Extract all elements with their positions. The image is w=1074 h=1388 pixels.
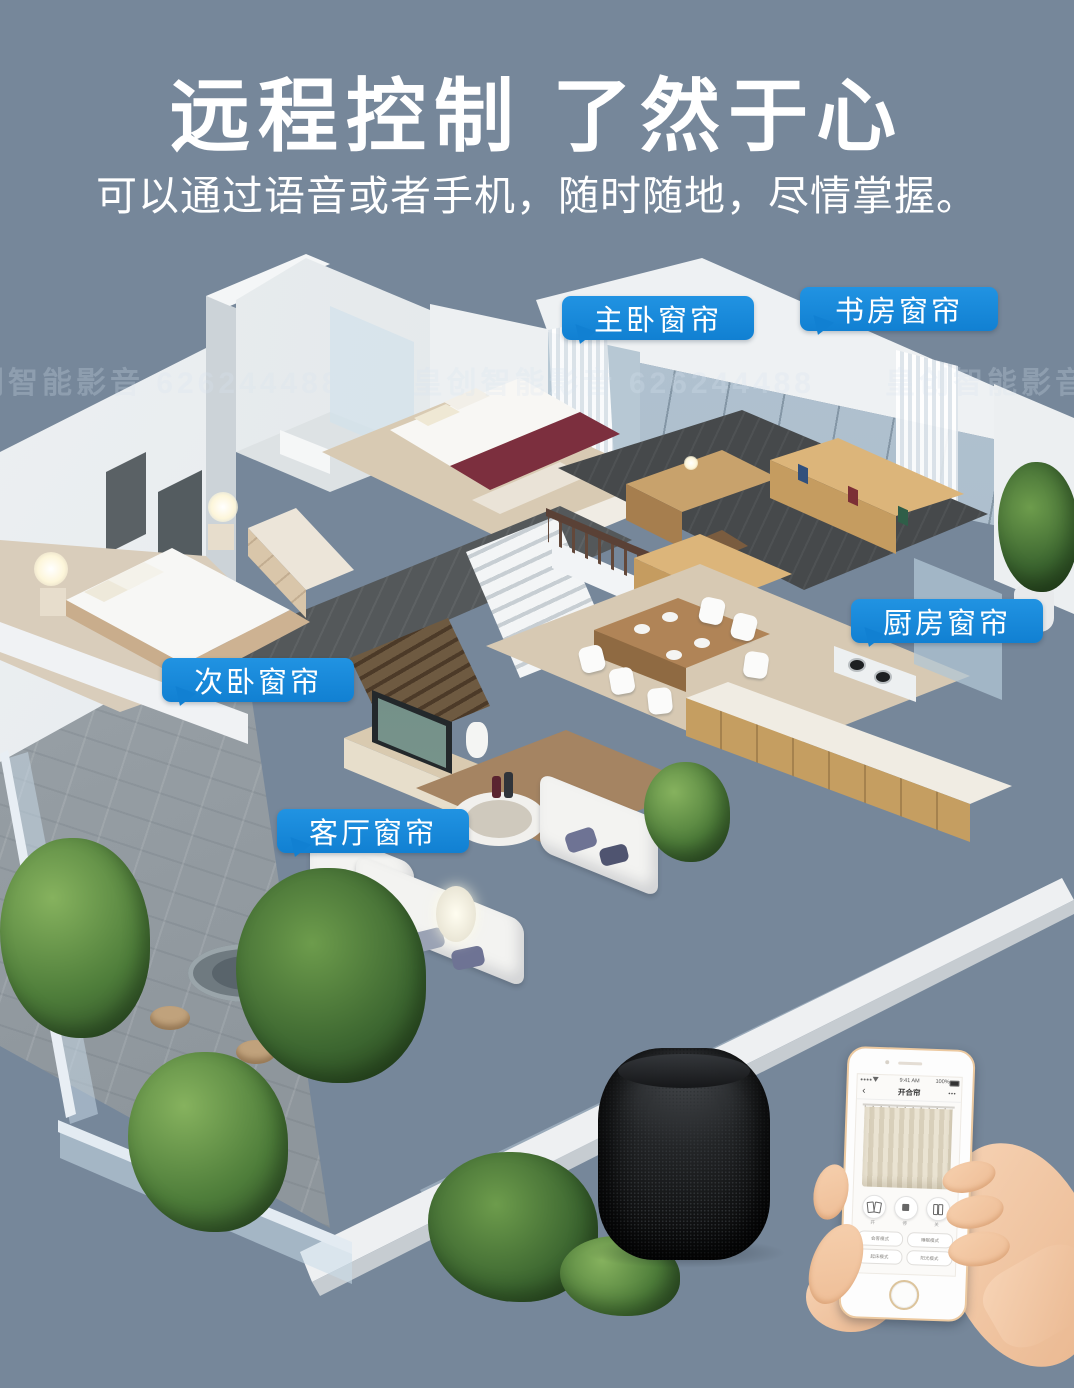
more-menu-button[interactable]: ••• — [948, 1087, 956, 1101]
stove-burner — [850, 660, 864, 670]
app-title: 开合帘 — [857, 1084, 961, 1102]
stop-curtain-button[interactable] — [894, 1196, 919, 1221]
plate — [666, 650, 682, 660]
nav-bar: ‹ 开合帘 ••• — [857, 1084, 961, 1103]
vase — [466, 722, 488, 758]
callout-second-bedroom-curtain: 次卧窗帘 — [162, 658, 354, 702]
dining-chair — [742, 650, 769, 679]
callout-study-curtain: 书房窗帘 — [800, 287, 998, 331]
callout-kitchen-curtain: 厨房窗帘 — [851, 599, 1043, 643]
callout-label: 主卧窗帘 — [594, 297, 722, 339]
smart-speaker-top — [618, 1054, 750, 1088]
dining-chair — [608, 666, 636, 696]
floor-lamp — [436, 886, 476, 942]
callout-master-bedroom-curtain: 主卧窗帘 — [562, 296, 754, 340]
front-camera — [885, 1060, 889, 1064]
mode-button[interactable]: 阳光模式 — [906, 1250, 952, 1267]
stop-label: 停 — [894, 1221, 916, 1228]
close-label: 关 — [925, 1222, 947, 1229]
hand-holding-phone: 9:41 AM 100% ‹ 开合帘 ••• 开 — [796, 1030, 1074, 1310]
table-lamp — [34, 552, 68, 586]
open-curtain-icon — [873, 1201, 882, 1213]
battery-percent: 100% — [935, 1079, 949, 1085]
close-curtain-icon — [938, 1204, 943, 1215]
watermark-text: 皇创智能影音 626244488 — [413, 367, 816, 400]
poster: { "colors": { "background": "#76879A", "… — [0, 0, 1074, 1310]
open-curtain-button[interactable] — [862, 1194, 887, 1219]
battery-icon — [949, 1080, 959, 1086]
coffee-table-top — [466, 800, 532, 838]
curtain-preview — [862, 1106, 953, 1189]
plate — [694, 638, 710, 648]
nightstand — [40, 588, 66, 616]
open-label: 开 — [862, 1219, 884, 1226]
watermark-text: 皇创智能影音 626244488 — [0, 367, 343, 400]
stove-burner — [876, 672, 890, 682]
stop-icon — [902, 1204, 909, 1211]
mode-button[interactable]: 睡眠模式 — [907, 1232, 953, 1249]
bottle — [492, 776, 501, 798]
home-button[interactable] — [889, 1279, 920, 1310]
table-lamp — [208, 492, 238, 522]
callout-living-room-curtain: 客厅窗帘 — [277, 809, 469, 853]
plate — [634, 624, 650, 634]
potted-plant — [644, 762, 730, 862]
stool — [150, 1006, 190, 1030]
earpiece — [898, 1062, 922, 1066]
callout-label: 厨房窗帘 — [883, 600, 1011, 642]
desk-lamp — [684, 456, 698, 470]
dining-chair — [647, 687, 674, 715]
watermark: 皇创智能影音 626244488皇创智能影音 626244488皇创智能影音 6… — [0, 358, 1074, 402]
plate — [662, 612, 678, 622]
callout-label: 客厅窗帘 — [309, 810, 437, 852]
nightstand — [208, 524, 234, 550]
shrub-plant — [128, 1052, 288, 1232]
bottle — [504, 772, 513, 798]
plant-foliage — [644, 762, 730, 862]
callout-label: 次卧窗帘 — [194, 659, 322, 701]
mode-button[interactable]: 会客模式 — [857, 1230, 903, 1247]
watermark-text: 皇创智能影音 626244488 — [885, 367, 1074, 400]
callout-label: 书房窗帘 — [835, 288, 963, 330]
